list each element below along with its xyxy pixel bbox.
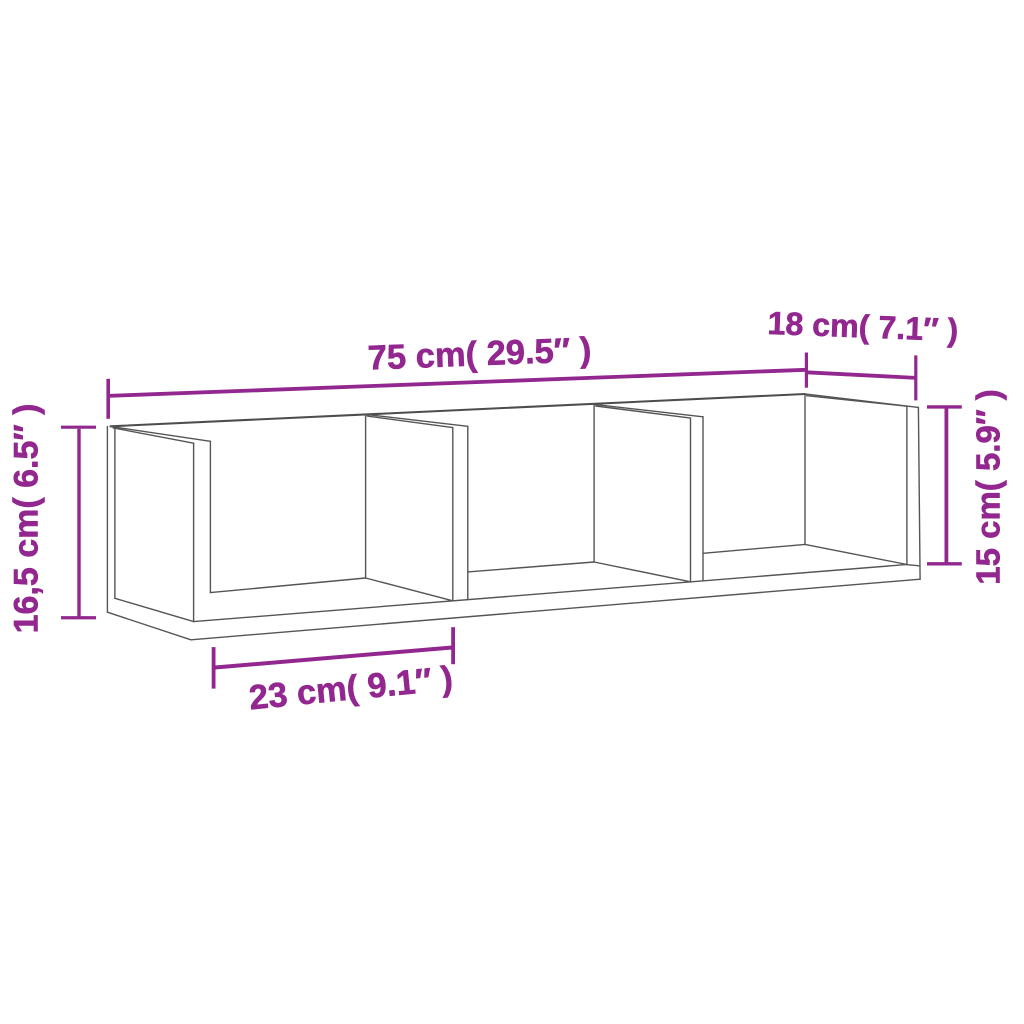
svg-text:16,5 cm( 6.5″ ): 16,5 cm( 6.5″ )	[8, 404, 46, 634]
svg-text:18 cm( 7.1″ ): 18 cm( 7.1″ )	[767, 305, 959, 348]
svg-text:15 cm( 5.9″ ): 15 cm( 5.9″ )	[970, 389, 1007, 585]
